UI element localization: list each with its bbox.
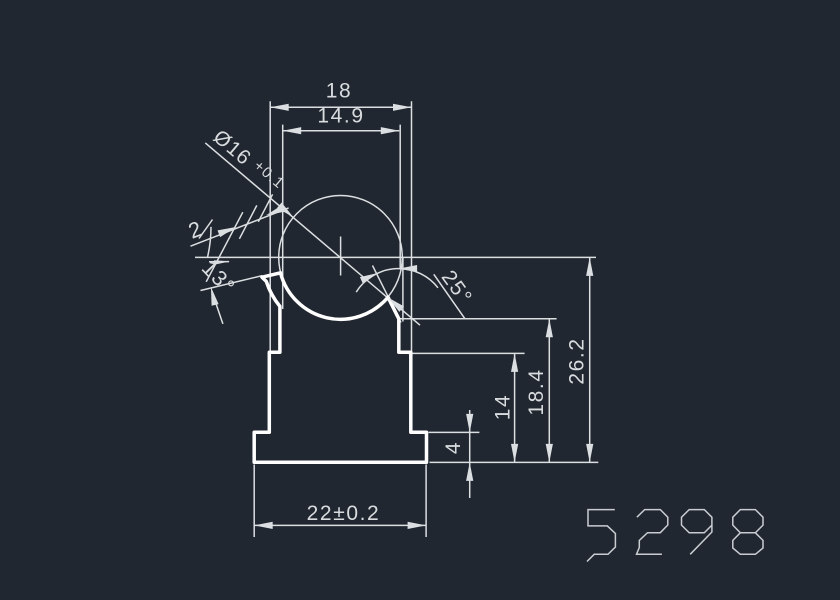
- svg-text:14: 14: [492, 394, 515, 421]
- svg-text:4: 4: [442, 441, 465, 454]
- svg-text:22±0.2: 22±0.2: [307, 502, 381, 525]
- svg-text:18.4: 18.4: [525, 368, 548, 415]
- svg-text:26.2: 26.2: [566, 337, 589, 384]
- svg-text:14.9: 14.9: [317, 105, 364, 128]
- svg-text:18: 18: [326, 80, 353, 103]
